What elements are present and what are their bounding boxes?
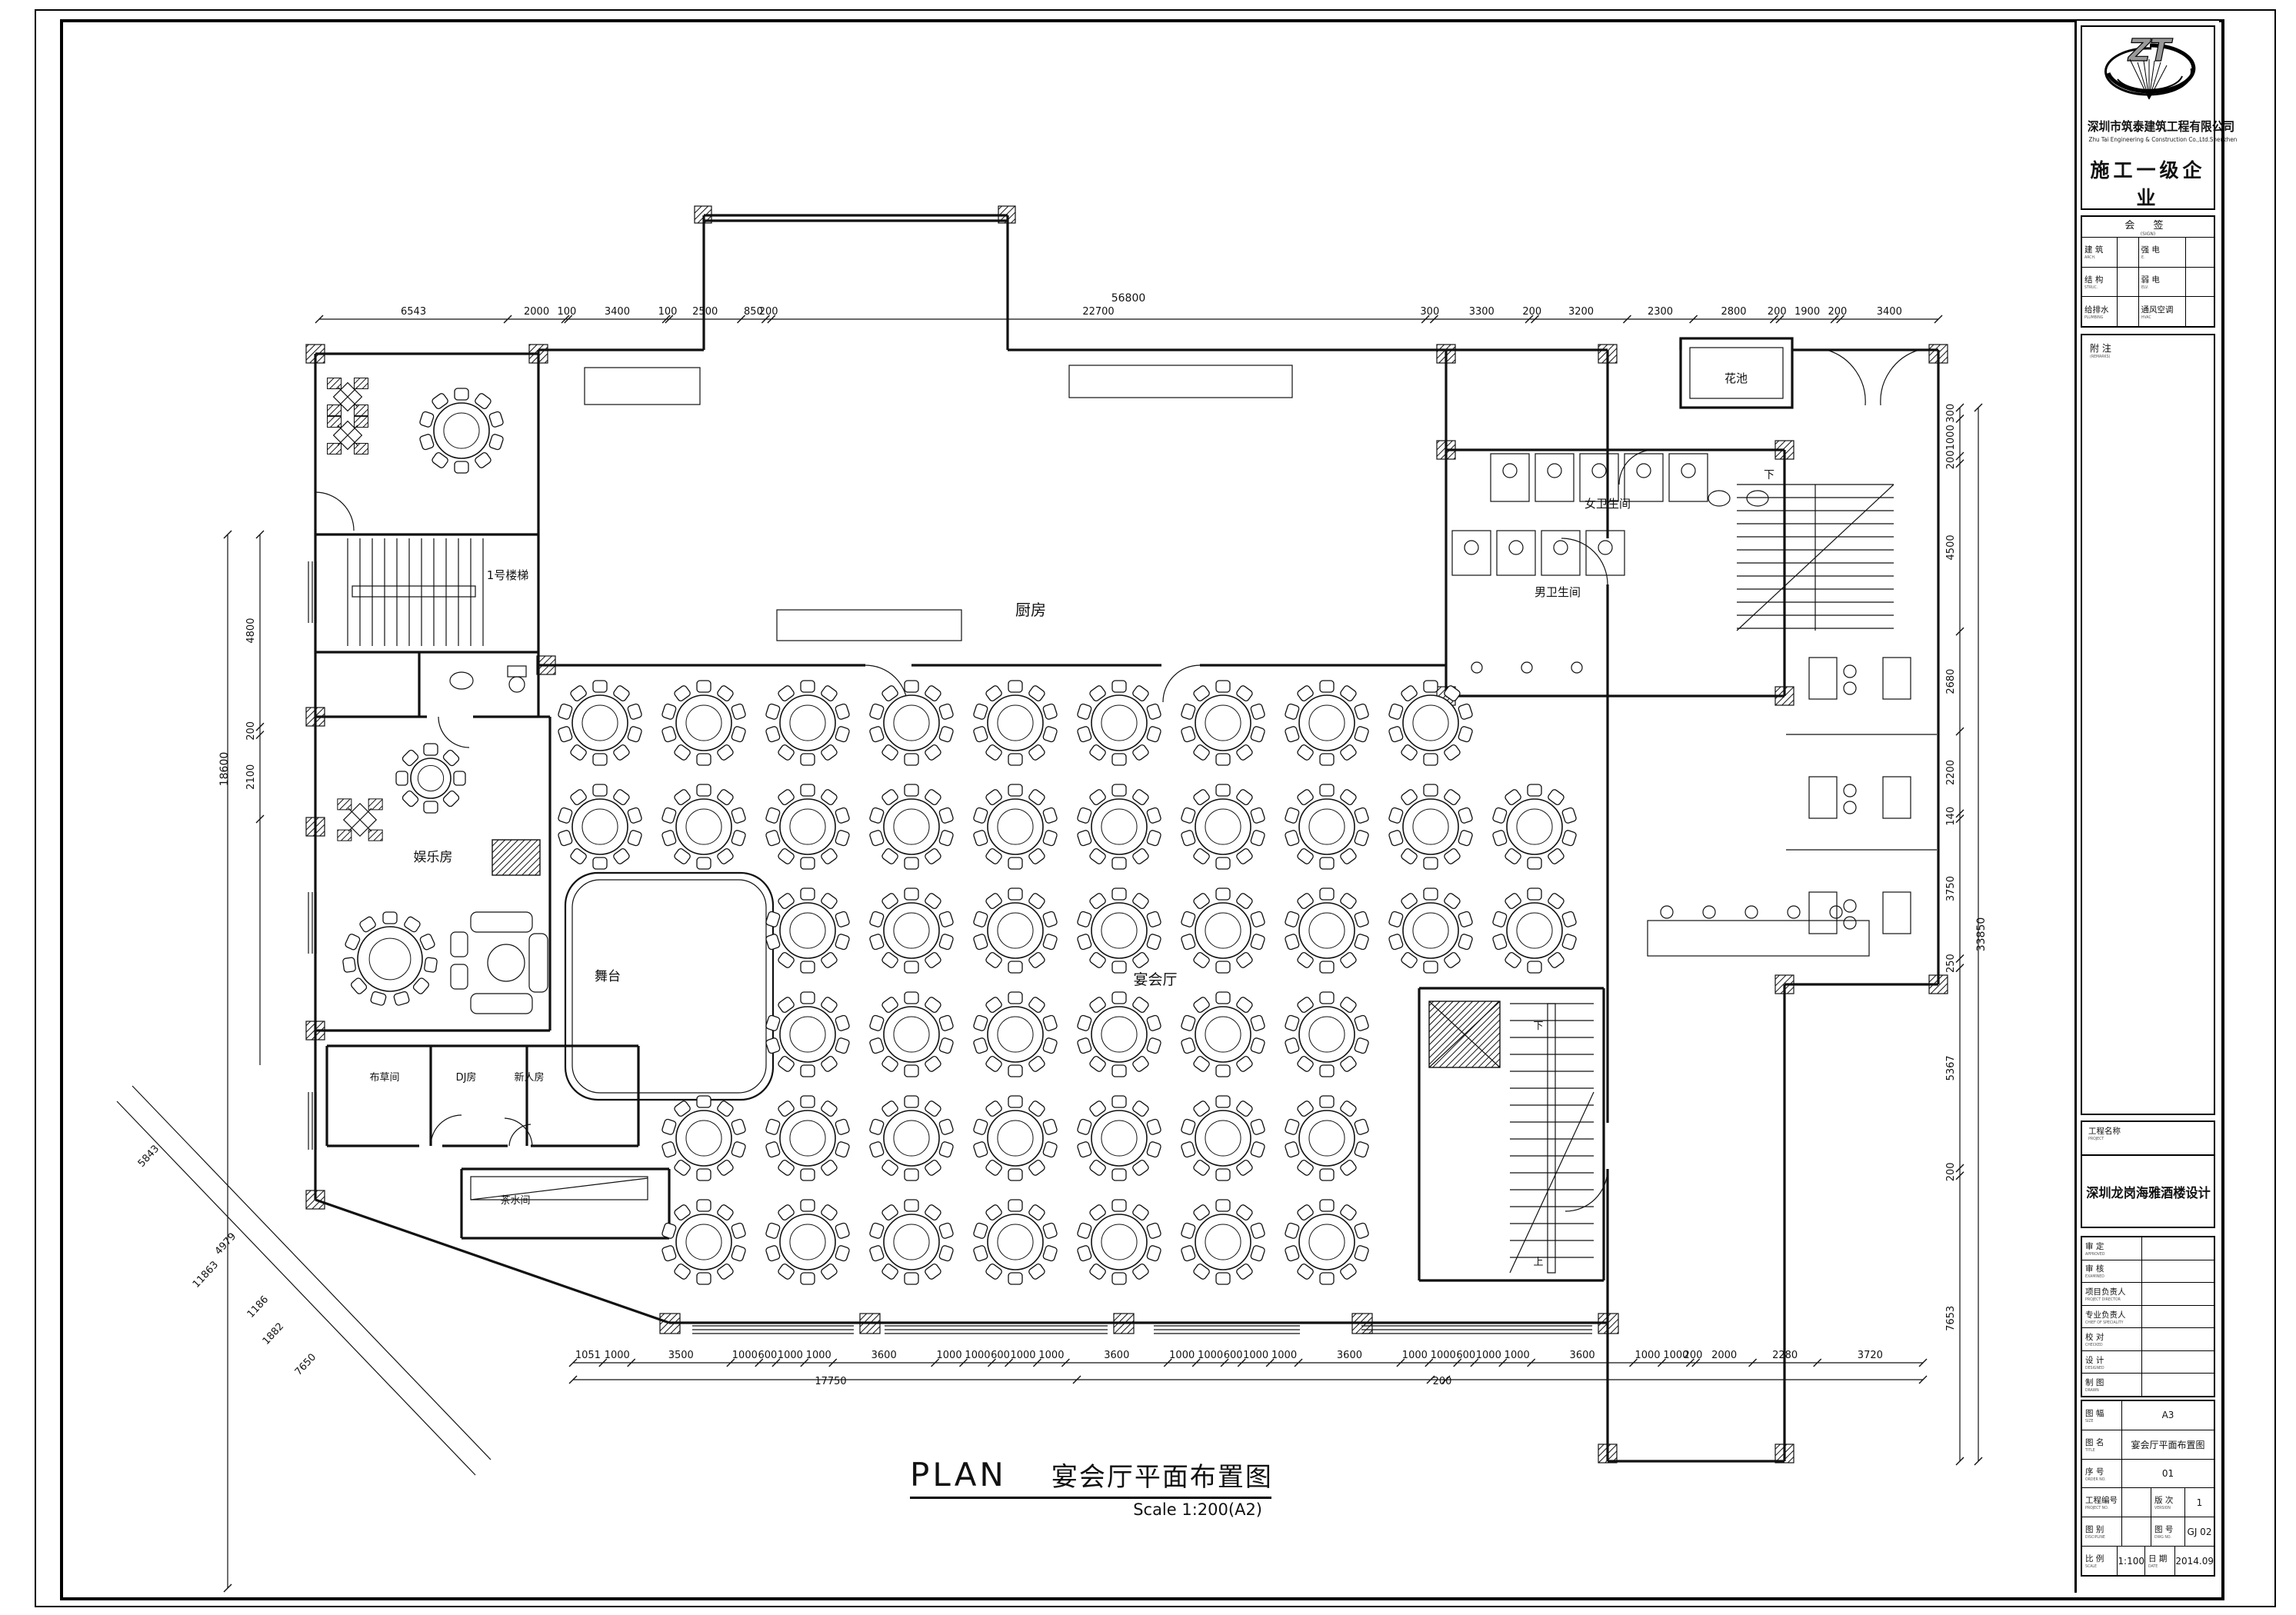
dimension-label: 600	[1456, 1350, 1475, 1361]
company-logo-icon: Z T	[2082, 28, 2217, 113]
banquet-table	[973, 1096, 1058, 1180]
banquet-table	[1181, 681, 1265, 765]
banquet-table	[869, 681, 954, 765]
countersign-header: 会 签 (SIGN)	[2082, 217, 2214, 238]
info-value-cell: 宴会厅平面布置图	[2122, 1430, 2214, 1459]
drawing-title-name: 宴会厅平面布置图	[1051, 1456, 1273, 1493]
signature-row: 专业负责人CHIEF OF SPECIALITY	[2082, 1306, 2214, 1329]
countersign-row: 给排水PLUMBING通风空调HVAC	[2082, 297, 2214, 326]
banquet-table	[1492, 888, 1577, 973]
dimension-label: 4500	[1945, 534, 1957, 560]
dimension-label: 3600	[871, 1350, 897, 1361]
info-label-cell: 比 例SCALE	[2082, 1547, 2118, 1575]
drawing-title-scale: Scale 1:200(A2)	[910, 1500, 1271, 1519]
dimension-label: 140	[1945, 807, 1957, 826]
dimension-label: 250	[1945, 954, 1957, 973]
room-label: 上	[1533, 1257, 1543, 1268]
info-value-cell: GJ 02	[2185, 1517, 2214, 1546]
banquet-table	[765, 1096, 850, 1180]
drawing-info-row: 图 别DISCIPLINE图 号DWG NO.GJ 02	[2082, 1517, 2214, 1547]
info-label-cell: 图 别DISCIPLINE	[2082, 1517, 2122, 1546]
company-box: Z T 深圳市筑泰建筑工程有限公司 Zhu Tai Engineering & …	[2081, 25, 2215, 210]
dimension-label: 2000	[1711, 1350, 1737, 1361]
dimension-label: 1186	[245, 1294, 272, 1320]
dimension-label: 1000	[605, 1350, 630, 1361]
banquet-table	[765, 992, 850, 1077]
info-label-cell: 工程编号PROJECT NO.	[2082, 1488, 2122, 1517]
drawing-title-plan: PLAN	[910, 1456, 1007, 1493]
company-name-cn: 深圳市筑泰建筑工程有限公司	[2088, 116, 2208, 135]
info-value-cell: 1	[2185, 1488, 2214, 1517]
countersign-signature-cell	[2118, 238, 2138, 267]
dimension-label: 1000	[1198, 1350, 1223, 1361]
banquet-table	[1181, 992, 1265, 1077]
banquet-table	[765, 784, 850, 869]
drawing-info-row: 图 幅SIZEA3	[2082, 1401, 2214, 1430]
dimension-label: 2280	[1772, 1350, 1798, 1361]
banquet-table	[1285, 784, 1369, 869]
company-name-en: Zhu Tai Engineering & Construction Co.,L…	[2089, 136, 2208, 143]
countersign-row: 结 构STRUC.弱 电ELV.	[2082, 268, 2214, 298]
dimension-label: 3600	[1104, 1350, 1129, 1361]
room-label: 娱乐房	[414, 850, 453, 865]
drawing-title: PLAN 宴会厅平面布置图 Scale 1:200(A2)	[910, 1456, 1271, 1519]
banquet-table	[558, 681, 642, 765]
room-label: 1号楼梯	[487, 568, 529, 582]
banquet-table	[396, 744, 465, 813]
banquet-table	[661, 681, 746, 765]
banquet-table	[973, 1200, 1058, 1284]
dimension-label: 3720	[1858, 1350, 1883, 1361]
dimension-label: 1000	[1243, 1350, 1268, 1361]
remarks-box: 附 注 (REMARKS)	[2081, 334, 2215, 1115]
signature-value-cell	[2142, 1260, 2214, 1283]
dimension-label: 1882	[261, 1320, 287, 1347]
countersign-discipline-cell: 结 构STRUC.	[2082, 268, 2118, 297]
dimension-label: 1000	[1476, 1350, 1501, 1361]
room-label: 男卫生间	[1535, 585, 1581, 599]
info-label-cell: 日 期DATE	[2145, 1547, 2175, 1575]
title-block: Z T 深圳市筑泰建筑工程有限公司 Zhu Tai Engineering & …	[2074, 21, 2219, 1593]
countersign-signature-cell	[2186, 297, 2214, 326]
dimension-label: 1051	[575, 1350, 601, 1361]
banquet-table	[1181, 784, 1265, 869]
remarks-label: 附 注	[2090, 341, 2214, 355]
banquet-table	[419, 388, 504, 473]
svg-text:T: T	[2150, 33, 2173, 68]
banquet-table	[869, 992, 954, 1077]
signature-row: 设 计DESIGNED	[2082, 1351, 2214, 1374]
dimension-label: 1000	[1169, 1350, 1195, 1361]
room-label: 布草间	[369, 1072, 399, 1084]
dimension-label: 1000	[965, 1350, 990, 1361]
dimension-label: 17750	[815, 1376, 846, 1387]
project-label: 工程名称	[2088, 1125, 2214, 1137]
countersign-title: 会 签	[2124, 217, 2171, 231]
info-label-cell: 图 号DWG NO.	[2151, 1517, 2185, 1546]
dimension-label: 2000	[524, 306, 549, 318]
project-label-en: PROJECT	[2088, 1137, 2195, 1141]
countersign-signature-cell	[2186, 238, 2214, 267]
banquet-table	[1077, 992, 1161, 1077]
dimension-label: 600	[1224, 1350, 1243, 1361]
signature-row: 制 图DRAWN	[2082, 1374, 2214, 1396]
dimension-label: 3750	[1945, 876, 1957, 901]
banquet-table	[1285, 888, 1369, 973]
room-label: 舞台	[595, 969, 621, 984]
dimension-label: 1000	[1431, 1350, 1456, 1361]
signature-value-cell	[2142, 1351, 2214, 1374]
dimension-label: 100	[557, 306, 576, 318]
banquet-table	[661, 784, 746, 869]
countersign-row: 建 筑ARCH.强 电E.	[2082, 238, 2214, 268]
dimension-label: 33850	[1975, 917, 1988, 952]
banquet-table	[973, 784, 1058, 869]
countersign-discipline-cell: 建 筑ARCH.	[2082, 238, 2118, 267]
banquet-table	[1181, 888, 1265, 973]
countersign-signature-cell	[2186, 268, 2214, 297]
dimension-label: 5843	[136, 1143, 162, 1169]
banquet-table	[1077, 681, 1161, 765]
dimension-label: 2200	[1945, 760, 1957, 785]
banquet-table	[765, 888, 850, 973]
drawing-info-box: 图 幅SIZEA3图 名TITLE宴会厅平面布置图序 号ORDER NO.01工…	[2081, 1400, 2215, 1577]
banquet-table	[1285, 1200, 1369, 1284]
banquet-table	[869, 784, 954, 869]
dimension-label: 3600	[1570, 1350, 1595, 1361]
info-value-cell: 1:100	[2118, 1547, 2145, 1575]
banquet-tables-layer	[342, 388, 1577, 1284]
signature-value-cell	[2142, 1237, 2214, 1260]
signature-row: 项目负责人PROJECT DIRECTOR	[2082, 1283, 2214, 1306]
banquet-table	[1077, 888, 1161, 973]
dimension-label: 200	[1945, 1162, 1957, 1181]
dimension-label: 11863	[191, 1259, 221, 1290]
remarks-label-en: (REMARKS)	[2090, 355, 2195, 359]
info-value-cell	[2122, 1488, 2151, 1517]
dimension-label: 18600	[218, 752, 231, 787]
countersign-box: 会 签 (SIGN) 建 筑ARCH.强 电E.结 构STRUC.弱 电ELV.…	[2081, 215, 2215, 328]
banquet-table	[1077, 784, 1161, 869]
dimension-label: 200	[1945, 451, 1957, 470]
dimension-label: 3400	[605, 306, 630, 318]
info-value-cell: 2014.09	[2175, 1547, 2214, 1575]
room-label: 花池	[1724, 371, 1748, 385]
dimension-label: 1000	[778, 1350, 803, 1361]
info-value-cell: A3	[2122, 1401, 2214, 1430]
dimension-label: 600	[758, 1350, 777, 1361]
dimension-label: 600	[991, 1350, 1010, 1361]
room-label: 茶水间	[500, 1194, 530, 1207]
dimension-label: 1000	[1505, 1350, 1530, 1361]
project-name-box: 深圳龙岗海雅酒楼设计	[2081, 1154, 2215, 1228]
dimension-label: 3200	[1568, 306, 1594, 318]
banquet-table	[1492, 784, 1577, 869]
dimension-label: 56800	[1111, 292, 1146, 305]
banquet-table	[869, 1096, 954, 1180]
drawing-info-row: 工程编号PROJECT NO.版 次VERSION1	[2082, 1488, 2214, 1517]
project-label-box: 工程名称 PROJECT	[2081, 1121, 2215, 1154]
banquet-table	[973, 992, 1058, 1077]
dimension-label: 4979	[213, 1230, 239, 1257]
signature-value-cell	[2142, 1306, 2214, 1328]
drawing-info-row: 序 号ORDER NO.01	[2082, 1460, 2214, 1489]
room-label: DJ房	[456, 1071, 477, 1084]
dimension-label: 1000	[1945, 425, 1957, 450]
banquet-table	[869, 888, 954, 973]
dimension-label: 5367	[1945, 1055, 1957, 1081]
floor-plan-svg: 6543200010034001002500850200227003003300…	[0, 0, 2296, 1615]
banquet-table	[342, 912, 437, 1006]
signature-row: 审 定APPROVED	[2082, 1237, 2214, 1260]
dimension-label: 1000	[937, 1350, 962, 1361]
room-label: 新人房	[514, 1071, 544, 1084]
info-label-cell: 图 幅SIZE	[2082, 1401, 2122, 1430]
drawing-sheet: 6543200010034001002500850200227003003300…	[0, 0, 2296, 1615]
banquet-table	[1285, 1096, 1369, 1180]
dimension-label: 3300	[1469, 306, 1495, 318]
banquet-table	[1285, 681, 1369, 765]
countersign-discipline-cell: 给排水PLUMBING	[2082, 297, 2118, 326]
info-label-cell: 图 名TITLE	[2082, 1430, 2122, 1459]
signature-row: 审 核EXAMINED	[2082, 1260, 2214, 1284]
room-label: 宴会厅	[1133, 971, 1177, 988]
banquet-table	[1388, 681, 1473, 765]
countersign-grid: 建 筑ARCH.强 电E.结 构STRUC.弱 电ELV.给排水PLUMBING…	[2082, 238, 2214, 326]
room-label: 女卫生间	[1585, 497, 1631, 511]
banquet-table	[1388, 784, 1473, 869]
banquet-table	[1077, 1200, 1161, 1284]
banquet-table	[765, 1200, 850, 1284]
banquet-table	[869, 1200, 954, 1284]
dimension-label: 300	[1945, 404, 1957, 423]
company-grade: 施工一级企业	[2082, 155, 2214, 211]
drawing-title-line: PLAN 宴会厅平面布置图	[910, 1456, 1271, 1499]
room-label: 下	[1533, 1021, 1543, 1032]
banquet-table	[1181, 1200, 1265, 1284]
dimension-label: 1000	[1271, 1350, 1297, 1361]
dimension-label: 1000	[1635, 1350, 1660, 1361]
dimension-label: 100	[658, 306, 678, 318]
countersign-signature-cell	[2118, 268, 2138, 297]
banquet-table	[661, 1096, 746, 1180]
countersign-discipline-cell: 通风空调HVAC	[2139, 297, 2187, 326]
dimension-label: 3500	[668, 1350, 694, 1361]
dimension-label: 22700	[1082, 306, 1114, 318]
banquet-table	[1077, 1096, 1161, 1180]
banquet-table	[765, 681, 850, 765]
svg-text:Z: Z	[2127, 33, 2151, 68]
countersign-discipline-cell: 弱 电ELV.	[2139, 268, 2187, 297]
dimension-label: 1000	[1402, 1350, 1428, 1361]
dimension-label: 1900	[1794, 306, 1820, 318]
countersign-title-en: (SIGN)	[2141, 231, 2155, 237]
signature-value-cell	[2142, 1328, 2214, 1350]
banquet-table	[1388, 888, 1473, 973]
dimension-label: 2100	[245, 764, 257, 790]
dimension-label: 200	[245, 721, 257, 741]
info-label-cell: 版 次VERSION	[2151, 1488, 2185, 1517]
dimension-label: 6543	[401, 306, 426, 318]
drawing-info-row: 比 例SCALE1:100日 期DATE2014.09	[2082, 1547, 2214, 1575]
info-label-cell: 序 号ORDER NO.	[2082, 1460, 2122, 1488]
dimension-label: 7650	[293, 1351, 319, 1377]
banquet-table	[973, 681, 1058, 765]
dimension-label: 3400	[1877, 306, 1902, 318]
banquet-table	[1285, 992, 1369, 1077]
dimension-label: 1000	[806, 1350, 831, 1361]
dimension-label: 3600	[1337, 1350, 1362, 1361]
room-label: 下	[1764, 469, 1774, 481]
dimension-label: 1000	[732, 1350, 758, 1361]
info-value-cell	[2122, 1517, 2151, 1546]
banquet-table	[661, 1200, 746, 1284]
project-name: 深圳龙岗海雅酒楼设计	[2086, 1182, 2211, 1201]
signature-value-cell	[2142, 1283, 2214, 1305]
dimension-label: 300	[1420, 306, 1439, 318]
dimension-label: 2680	[1945, 669, 1957, 694]
drawing-info-row: 图 名TITLE宴会厅平面布置图	[2082, 1430, 2214, 1460]
dimension-label: 7653	[1945, 1306, 1957, 1331]
dimension-label: 2800	[1721, 306, 1746, 318]
dimension-label: 4800	[245, 618, 257, 644]
banquet-table	[558, 784, 642, 869]
dimension-label: 2300	[1648, 306, 1673, 318]
dimension-label: 1000	[1010, 1350, 1035, 1361]
info-value-cell: 01	[2122, 1460, 2214, 1488]
signature-row: 校 对CHECKED	[2082, 1328, 2214, 1351]
dimension-label: 2500	[692, 306, 718, 318]
banquet-table	[1181, 1096, 1265, 1180]
banquet-table	[973, 888, 1058, 973]
signature-box: 审 定APPROVED审 核EXAMINED项目负责人PROJECT DIREC…	[2081, 1236, 2215, 1397]
room-label: 厨房	[1015, 601, 1046, 619]
dimension-label: 1000	[1038, 1350, 1064, 1361]
countersign-discipline-cell: 强 电E.	[2139, 238, 2187, 267]
countersign-signature-cell	[2118, 297, 2138, 326]
signature-value-cell	[2142, 1374, 2214, 1396]
